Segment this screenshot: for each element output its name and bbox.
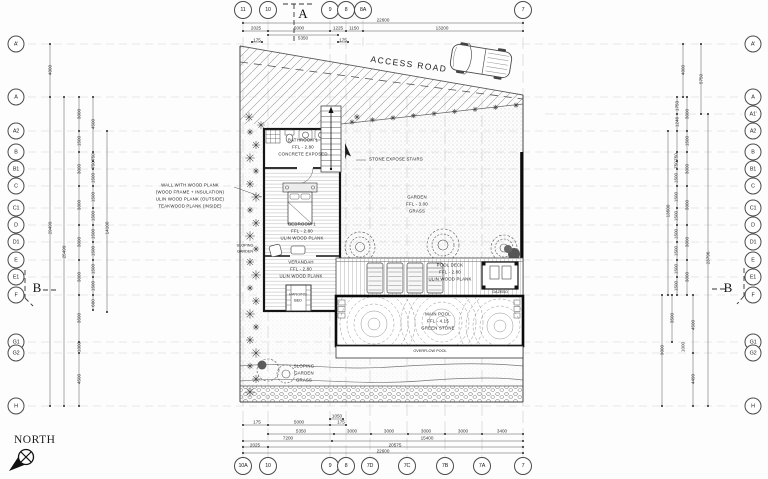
grid-bubble-left-D: D [8,217,25,234]
dimension-label: 1500 [674,246,679,256]
wall-note-line: TEAKWOOD PLANK (INSIDE) [156,203,224,210]
grid-bubble-bottom-8: 8 [337,457,355,475]
grid-bubble-left-E: E [8,252,25,269]
strip-line: SLOPING [237,243,254,249]
grid-bubble-bottom-7B: 7B [436,457,454,475]
gazebo-label: GAZEBO [492,290,508,296]
dimension-label: 5000 [294,420,304,425]
dimension-label: 4500 [91,119,96,129]
main-pool-label: MAIN POOL FFL - 4.15 GREEN STONE [421,312,454,333]
dimension-label: 4500 [691,320,696,330]
grid-bubble-right-G2: G2 [745,345,762,362]
grid-bubble-right-H: H [745,398,762,415]
room-finish: GRASS [406,208,428,215]
dimension-label: 5350 [296,429,306,434]
dimension-label: 3000 [77,164,82,174]
stairs-label: STONE EXPOSE STAIRS [369,157,423,164]
dimension-label: 4499 [691,374,696,384]
room-level: FFL - 4.15 [421,319,454,326]
dimension-label: 22600 [377,449,390,454]
grid-bubble-right-C: C [745,178,762,195]
dimension-label: 3000 [685,200,690,210]
dimension-label: 1500 [674,211,679,221]
dimension-label: 20575 [389,443,402,448]
dimension-label: 3000 [458,429,468,434]
dimension-label: 3000 [685,109,690,119]
dimension-label: 1246 [675,117,680,127]
room-name: BEDROOM 1 [280,222,323,229]
grid-bubble-right-A: A [745,89,762,106]
grid-bubble-right-E: E [745,252,762,269]
dimension-label: 1500 [674,229,679,239]
grid-bubble-left-B: B [8,144,25,161]
dimension-label: 13500 [666,205,671,218]
room-finish: ULIN WOOD PLANK [428,276,471,283]
section-marker-b-left: B [33,280,42,296]
dimension-label: 3500 [670,313,675,323]
grid-bubble-bottom-10A: 10A [234,457,252,475]
dimension-label: 1500 [674,281,679,291]
wall-note: WALL WITH WOOD PLANK (WOOD FRAME + INSUL… [156,182,224,210]
dimension-label: 175 [337,420,345,425]
grid-bubble-top-11: 11 [234,1,252,19]
grid-bubble-right-B: B [745,144,762,161]
dimension-label: 3000 [685,164,690,174]
north-label: NORTH [14,434,55,446]
hanging-bed-label: HANGING BED [289,292,307,303]
dimension-label: 1500 [91,192,96,202]
grid-bubble-left-H: H [8,398,25,415]
room-level: FFL - 3.00 [406,202,428,209]
grid-bubble-left-A: A [8,89,25,106]
floor-plan-sheet: ACCESS ROAD WALL WITH WOOD PLANK (WOOD F… [0,0,768,479]
dimension-label: 3000 [347,429,357,434]
room-level: FFL - 2.80 [278,145,327,152]
grid-bubble-left-E1: E1 [8,269,25,286]
grid-bubble-left-G2: G2 [8,345,25,362]
dimension-label: 1500 [674,192,679,202]
grid-bubble-left-A': A' [8,36,25,53]
car-icon [449,41,513,82]
section-marker-a: A [298,6,307,22]
dimension-label: 3000 [384,429,394,434]
grid-bubble-top-7: 7 [514,1,532,19]
dimension-label: 1050 [332,414,342,419]
room-finish: GRASS [294,377,315,384]
wall-note-line: WALL WITH WOOD PLANK [156,182,224,189]
grid-bubble-bottom-7C: 7C [398,457,416,475]
grid-bubble-left-C1: C1 [8,200,25,217]
dimension-label: 1150 [349,26,359,31]
dimension-label: 600 [91,299,96,307]
dimension-label: 4500 [77,374,82,384]
dimension-label: 1500 [91,173,96,183]
room-name: POOL DECK [428,263,471,270]
dimension-label: 750 [674,161,679,169]
sloping-garden-label: SLOPING GARDEN GRASS [294,364,315,385]
dimension-label: 2025 [250,443,260,448]
room-name: GARDEN [406,195,428,202]
wall-note-line: (WOOD FRAME + INSULATION) [156,189,224,196]
dimension-label: 1500 [91,264,96,274]
dimension-label: 175 [253,420,261,425]
room-level: FFL - 2.80 [428,270,471,277]
grid-bubble-right-C1: C1 [745,200,762,217]
dimension-label: 7200 [283,436,293,441]
dimension-label: 3000 [685,272,690,282]
room-name: MAIN POOL [421,312,454,319]
dimension-label: 1500 [91,281,96,291]
room-level: FFL - 2.80 [280,229,323,236]
overflow-pool-label: OVERFLOW POOL [413,349,446,355]
room-finish: ULIN WOOD PLANK [279,273,322,280]
north-compass-icon [9,450,34,472]
grid-bubble-right-D1: D1 [745,234,762,251]
dimension-label: 1500 [674,173,679,183]
grid-bubble-left-B1: B1 [8,161,25,178]
grid-bubble-bottom-7: 7 [514,457,532,475]
grid-bubble-left-C: C [8,178,25,195]
room-finish: ULIN WOOD PLANK [280,235,323,242]
dimension-label: 5350 [298,36,308,41]
dimension-label: 9000 [660,345,665,355]
dimension-label: 13200 [436,26,449,31]
pool-deck-label: POOL DECK FFL - 2.80 ULIN WOOD PLANK [428,263,471,284]
grid-bubble-right-E1: E1 [745,269,762,286]
dimension-label: 3400 [497,429,507,434]
grid-bubble-top-8A: 8A [354,1,372,19]
grid-bubble-right-A2: A2 [745,123,762,140]
dimension-label: 1500 [91,229,96,239]
dimension-label: 3000 [77,237,82,247]
grid-bubble-right-D: D [745,217,762,234]
dimension-label: 3000 [421,429,431,434]
floor-plan-drawing [0,0,768,479]
grid-bubble-bottom-10: 10 [259,457,277,475]
grid-bubble-left-D1: D1 [8,234,25,251]
dimension-label: 15400 [421,436,434,441]
bedroom-label: BEDROOM 1 FFL - 2.80 ULIN WOOD PLANK [280,222,323,243]
room-name: SLOPING [294,364,315,371]
grid-bubble-right-A1': A1' [745,106,762,123]
dimension-label: 3000 [77,109,82,119]
room-name: GARDEN [294,371,315,378]
dimension-label: 3000 [685,237,690,247]
dimension-label: 1000 [681,342,686,352]
dimension-label: 750 [91,153,96,161]
grid-bubble-right-B1: B1 [745,161,762,178]
dimension-label: 25499 [62,246,67,259]
dimension-label: 23796 [706,252,711,265]
grid-bubble-right-F: F [745,287,762,304]
dimension-label: 29499 [48,222,53,235]
gazebo-icon [482,262,518,289]
dimension-label: 1500 [77,136,82,146]
dimension-label: 2025 [251,26,261,31]
bathroom-label: BATHROOM 1 FFL - 2.80 CONCRETE EXPOSED [278,138,327,159]
dimension-label: 14100 [105,222,110,235]
dimension-label: 5000 [294,26,304,31]
section-marker-b-right: B [724,280,733,296]
wall-note-line: ULIN WOOD PLANK (OUTSIDE) [156,196,224,203]
dimension-label: 1500 [91,211,96,221]
grid-bubble-left-F: F [8,287,25,304]
grid-bubble-left-A2: A2 [8,123,25,140]
room-name: VERANDAH [279,260,322,267]
dimension-label: 1753 [675,101,680,111]
grid-bubble-bottom-7A: 7A [473,457,491,475]
dimension-label: 5750 [699,74,704,84]
dimension-label: 3000 [77,200,82,210]
dimension-label: 1500 [685,136,690,146]
strip-line: GARDEN [237,249,254,255]
room-name: BATHROOM 1 [278,138,327,145]
bed-icon [283,183,317,224]
dimension-label: 4000 [48,65,53,75]
verandah-label: VERANDAH FFL - 2.80 ULIN WOOD PLANK [279,260,322,281]
room-finish: CONCRETE EXPOSED [278,151,327,158]
sloping-strip-label: SLOPING GARDEN [237,243,254,254]
dimension-label: 4000 [681,65,686,75]
dimension-label: 3000 [77,272,82,282]
garden-label: GARDEN FFL - 3.00 GRASS [406,195,428,216]
dimension-label: 175 [253,38,261,43]
grid-bubble-bottom-7D: 7D [361,457,379,475]
dimension-label: 750 [674,153,679,161]
room-level: FFL - 2.80 [279,267,322,274]
grid-bubble-right-A': A' [745,36,762,53]
grid-bubble-top-8: 8 [337,1,355,19]
dimension-label: 1500 [674,264,679,274]
room-finish: GREEN STONE [421,325,454,332]
grid-bubble-top-10: 10 [259,1,277,19]
dimension-label: 1000 [77,342,82,352]
dimension-label: 750 [91,161,96,169]
dimension-label: 1500 [91,246,96,256]
dimension-label: 3500 [77,313,82,323]
dimension-label: 175 [339,38,347,43]
dimension-label: 22600 [377,18,390,23]
dimension-label: 1225 [333,26,343,31]
